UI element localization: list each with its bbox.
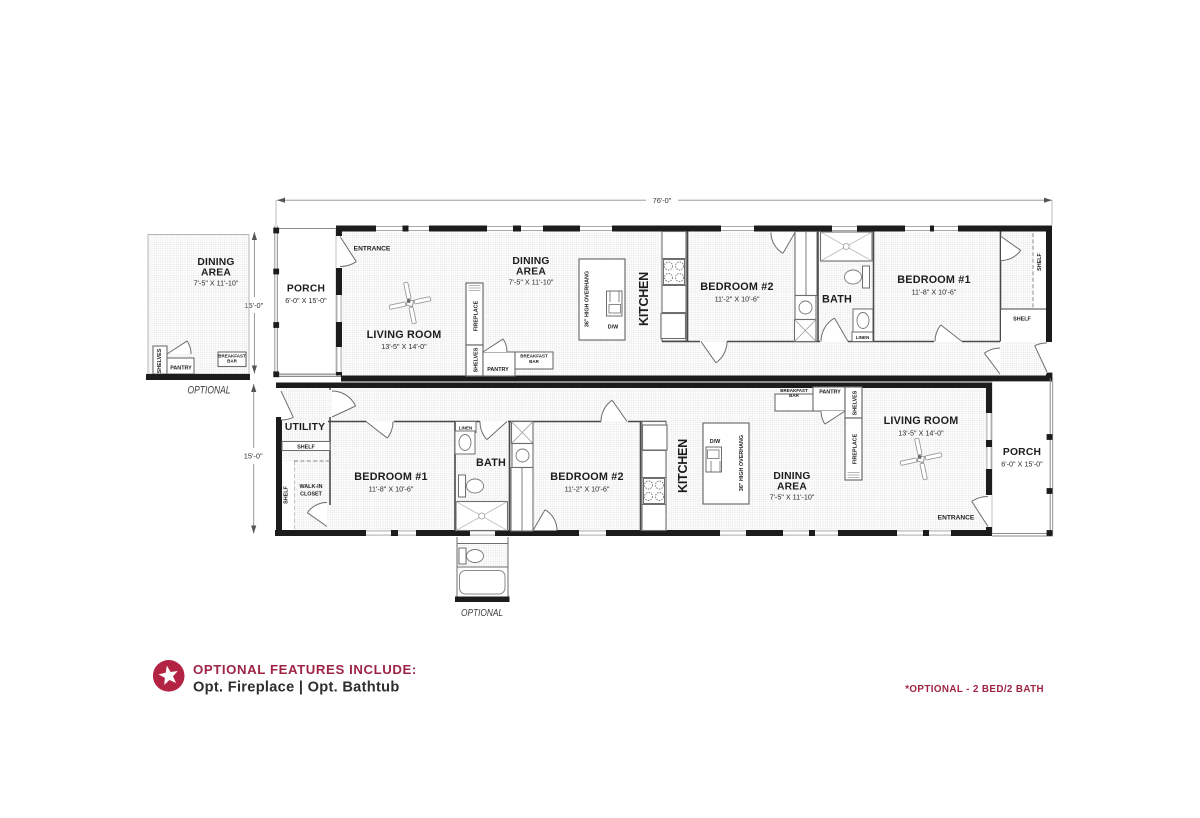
svg-text:LIVING ROOM: LIVING ROOM	[884, 415, 959, 427]
svg-text:BEDROOM #1: BEDROOM #1	[897, 274, 970, 286]
svg-text:AREA: AREA	[201, 268, 231, 279]
svg-text:KITCHEN: KITCHEN	[676, 439, 690, 493]
svg-text:11'-2" X 10'-6": 11'-2" X 10'-6"	[715, 295, 760, 304]
svg-text:SHELVES: SHELVES	[853, 390, 859, 415]
svg-text:15'-0": 15'-0"	[244, 452, 263, 461]
svg-text:D/W: D/W	[710, 439, 721, 445]
svg-text:ENTRANCE: ENTRANCE	[938, 515, 975, 522]
svg-text:SHELF: SHELF	[297, 445, 315, 451]
svg-text:*OPTIONAL - 2 BED/2 BATH: *OPTIONAL - 2 BED/2 BATH	[905, 684, 1044, 695]
svg-text:ENTRANCE: ENTRANCE	[354, 246, 391, 253]
svg-text:OPTIONAL: OPTIONAL	[188, 385, 231, 397]
svg-text:11'-2" X 10'-6": 11'-2" X 10'-6"	[565, 485, 610, 494]
svg-text:BEDROOM #2: BEDROOM #2	[700, 281, 773, 293]
svg-text:AREA: AREA	[777, 482, 807, 493]
svg-text:11'-8" X 10'-6": 11'-8" X 10'-6"	[369, 485, 414, 494]
svg-text:WALK-IN: WALK-IN	[299, 484, 322, 490]
svg-text:BAR: BAR	[227, 359, 237, 364]
svg-text:13'-5" X 14'-0": 13'-5" X 14'-0"	[898, 429, 944, 438]
svg-text:36" HIGH OVERHANG: 36" HIGH OVERHANG	[739, 435, 745, 491]
svg-text:SHELVES: SHELVES	[474, 347, 480, 372]
svg-text:BAR: BAR	[529, 359, 539, 364]
svg-text:7'-5" X 11'-10": 7'-5" X 11'-10"	[509, 278, 554, 287]
svg-text:BATH: BATH	[822, 294, 852, 306]
svg-text:KITCHEN: KITCHEN	[637, 272, 651, 326]
svg-text:PANTRY: PANTRY	[170, 366, 192, 372]
svg-text:36" HIGH OVERHANG: 36" HIGH OVERHANG	[585, 271, 591, 327]
svg-text:DINING: DINING	[512, 256, 549, 267]
svg-text:PORCH: PORCH	[1003, 447, 1041, 458]
svg-text:BEDROOM #1: BEDROOM #1	[354, 471, 427, 483]
svg-text:BATH: BATH	[476, 457, 506, 469]
svg-text:UTILITY: UTILITY	[285, 422, 325, 433]
svg-text:LINEN: LINEN	[459, 426, 473, 431]
svg-text:7'-5" X 11'-10": 7'-5" X 11'-10"	[770, 493, 815, 502]
svg-text:LIVING ROOM: LIVING ROOM	[367, 329, 442, 341]
svg-text:7'-5" X 11'-10": 7'-5" X 11'-10"	[194, 279, 239, 288]
svg-text:Opt. Fireplace | Opt. Bathtub: Opt. Fireplace | Opt. Bathtub	[193, 680, 400, 696]
svg-text:OPTIONAL FEATURES INCLUDE:: OPTIONAL FEATURES INCLUDE:	[193, 662, 417, 677]
svg-text:OPTIONAL: OPTIONAL	[461, 608, 503, 619]
svg-text:LINEN: LINEN	[856, 335, 870, 340]
svg-text:SHELF: SHELF	[1013, 317, 1031, 323]
svg-text:BAR: BAR	[789, 393, 799, 398]
svg-text:SHELF: SHELF	[284, 485, 290, 503]
svg-text:SHELF: SHELF	[1037, 252, 1043, 270]
svg-text:FIREPLACE: FIREPLACE	[853, 433, 859, 464]
svg-text:AREA: AREA	[516, 267, 546, 278]
svg-text:6'-0" X 15'-0": 6'-0" X 15'-0"	[285, 296, 327, 305]
svg-text:76'-0": 76'-0"	[653, 196, 672, 205]
svg-text:BEDROOM #2: BEDROOM #2	[550, 471, 623, 483]
svg-text:6'-0" X 15'-0": 6'-0" X 15'-0"	[1001, 460, 1043, 469]
svg-text:DINING: DINING	[197, 257, 234, 268]
svg-text:PORCH: PORCH	[287, 284, 325, 295]
svg-text:PANTRY: PANTRY	[487, 367, 509, 373]
svg-text:BREAKFAST: BREAKFAST	[520, 354, 548, 359]
svg-text:CLOSET: CLOSET	[300, 492, 323, 498]
svg-text:PANTRY: PANTRY	[819, 390, 841, 396]
svg-text:D/W: D/W	[608, 325, 619, 331]
svg-text:11'-8" X 10'-6": 11'-8" X 10'-6"	[912, 288, 957, 297]
svg-text:SHELVES: SHELVES	[157, 348, 163, 373]
svg-text:13'-5" X 14'-0": 13'-5" X 14'-0"	[381, 342, 427, 351]
svg-text:DINING: DINING	[773, 471, 810, 482]
svg-text:FIREPLACE: FIREPLACE	[474, 300, 480, 331]
